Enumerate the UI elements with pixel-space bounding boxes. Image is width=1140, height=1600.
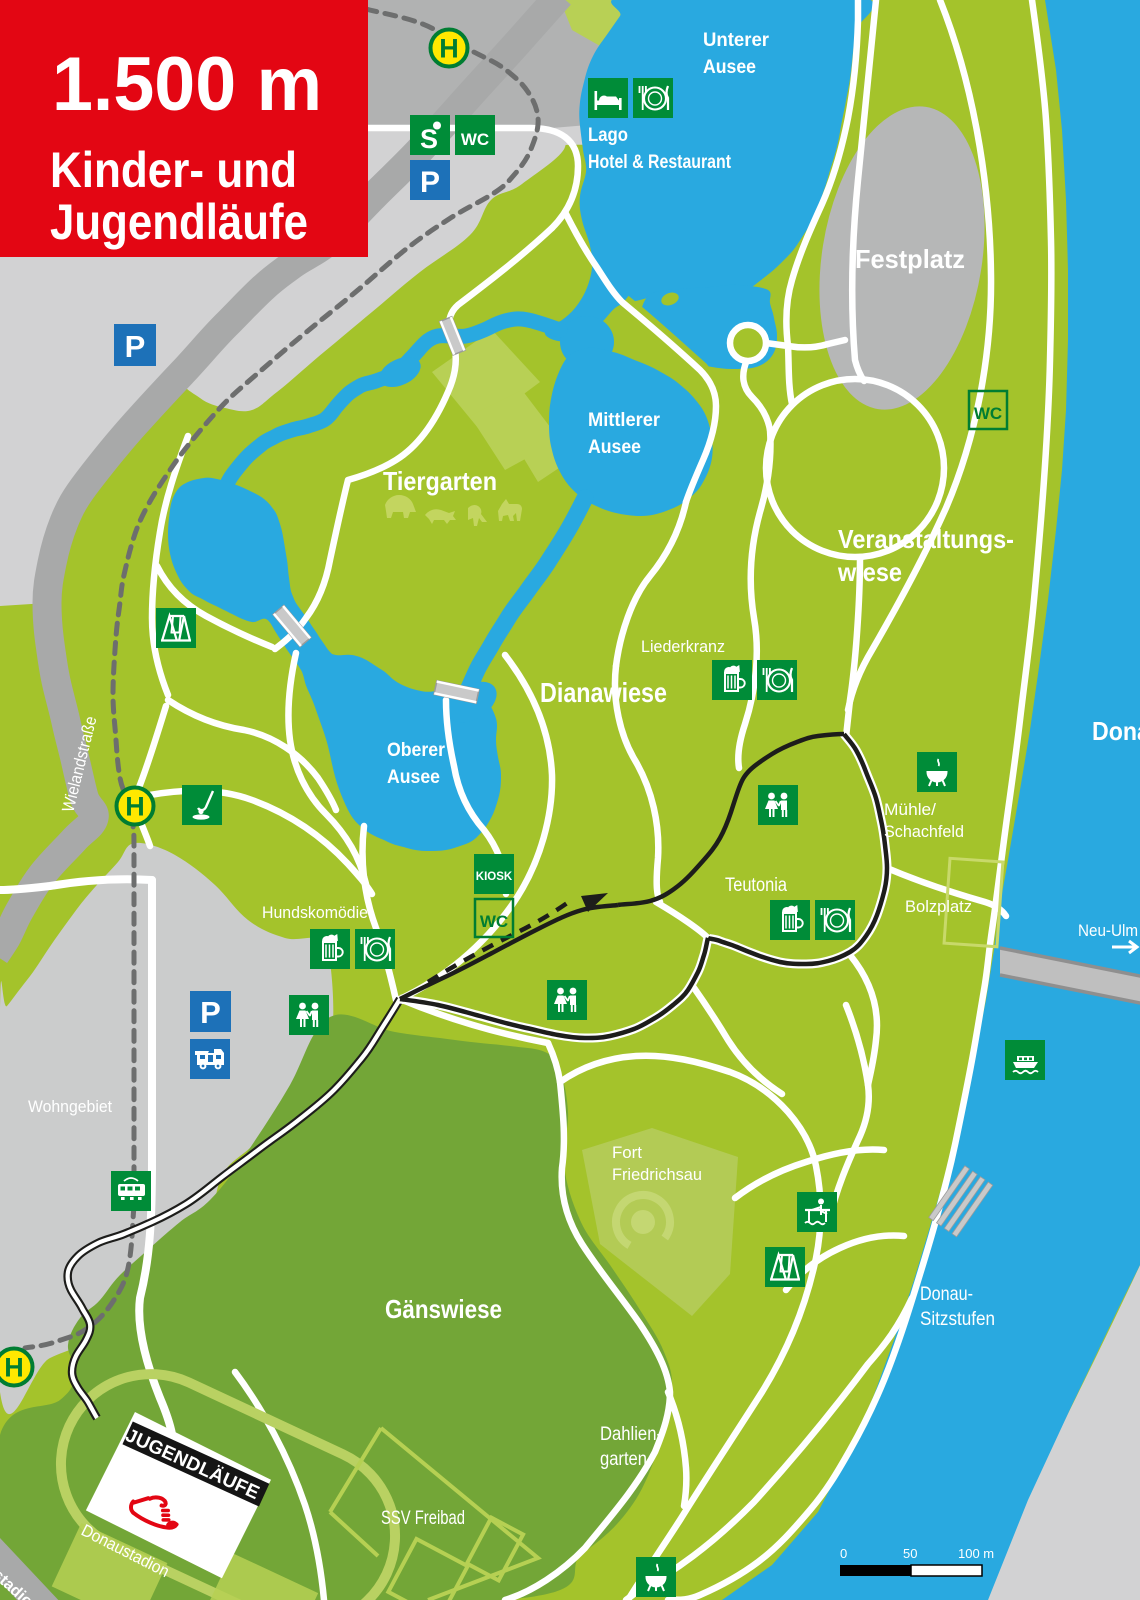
svg-text:H: H: [125, 792, 145, 822]
svg-text:WC: WC: [974, 404, 1002, 423]
svg-text:SSV Freibad: SSV Freibad: [381, 1508, 465, 1529]
svg-text:Schachfeld: Schachfeld: [884, 822, 964, 841]
svg-text:Unterer: Unterer: [703, 30, 770, 51]
svg-text:0: 0: [840, 1546, 847, 1561]
svg-text:Neu-Ulm: Neu-Ulm: [1078, 921, 1138, 940]
svg-text:Lago: Lago: [588, 125, 628, 146]
svg-text:H: H: [4, 1353, 24, 1383]
svg-text:Dahlien-: Dahlien-: [600, 1424, 662, 1445]
svg-text:1.500 m: 1.500 m: [52, 42, 322, 127]
svg-text:Donau-: Donau-: [920, 1284, 973, 1305]
svg-text:Fort: Fort: [612, 1143, 642, 1162]
svg-text:Hotel & Restaurant: Hotel & Restaurant: [588, 152, 732, 173]
svg-text:Hundskomödie: Hundskomödie: [262, 903, 368, 922]
svg-text:Gänswiese: Gänswiese: [385, 1294, 502, 1324]
svg-text:Ausee: Ausee: [387, 767, 440, 788]
svg-text:100 m: 100 m: [958, 1546, 994, 1561]
svg-text:Mühle/: Mühle/: [884, 800, 936, 819]
svg-text:Teutonia: Teutonia: [725, 875, 787, 896]
svg-text:garten: garten: [600, 1449, 647, 1470]
svg-text:P: P: [200, 995, 221, 1030]
svg-text:Tiergarten: Tiergarten: [383, 466, 497, 496]
svg-text:Ausee: Ausee: [588, 437, 641, 458]
svg-text:Kinder- und: Kinder- und: [50, 142, 297, 198]
svg-text:WC: WC: [480, 912, 508, 931]
svg-text:Sitzstufen: Sitzstufen: [920, 1309, 995, 1330]
svg-text:P: P: [125, 329, 146, 364]
svg-text:H: H: [439, 34, 459, 64]
svg-text:Dianawiese: Dianawiese: [540, 677, 667, 708]
svg-text:Mittlerer: Mittlerer: [588, 410, 661, 431]
svg-text:Veranstaltungs-: Veranstaltungs-: [838, 524, 1014, 554]
svg-text:Liederkranz: Liederkranz: [641, 637, 725, 656]
svg-text:Ausee: Ausee: [703, 57, 756, 78]
svg-text:Bolzplatz: Bolzplatz: [905, 897, 972, 916]
svg-text:50: 50: [903, 1546, 917, 1561]
svg-text:WC: WC: [461, 130, 489, 149]
svg-text:Festplatz: Festplatz: [855, 244, 965, 274]
svg-text:Jugendläufe: Jugendläufe: [50, 194, 308, 250]
svg-text:Wohngebiet: Wohngebiet: [28, 1097, 112, 1116]
svg-text:P: P: [420, 166, 440, 199]
svg-text:Friedrichsau: Friedrichsau: [612, 1165, 702, 1184]
svg-text:Donau: Donau: [1092, 716, 1140, 746]
svg-text:KIOSK: KIOSK: [476, 871, 513, 883]
svg-text:Oberer: Oberer: [387, 740, 446, 761]
svg-text:wiese: wiese: [837, 557, 902, 587]
